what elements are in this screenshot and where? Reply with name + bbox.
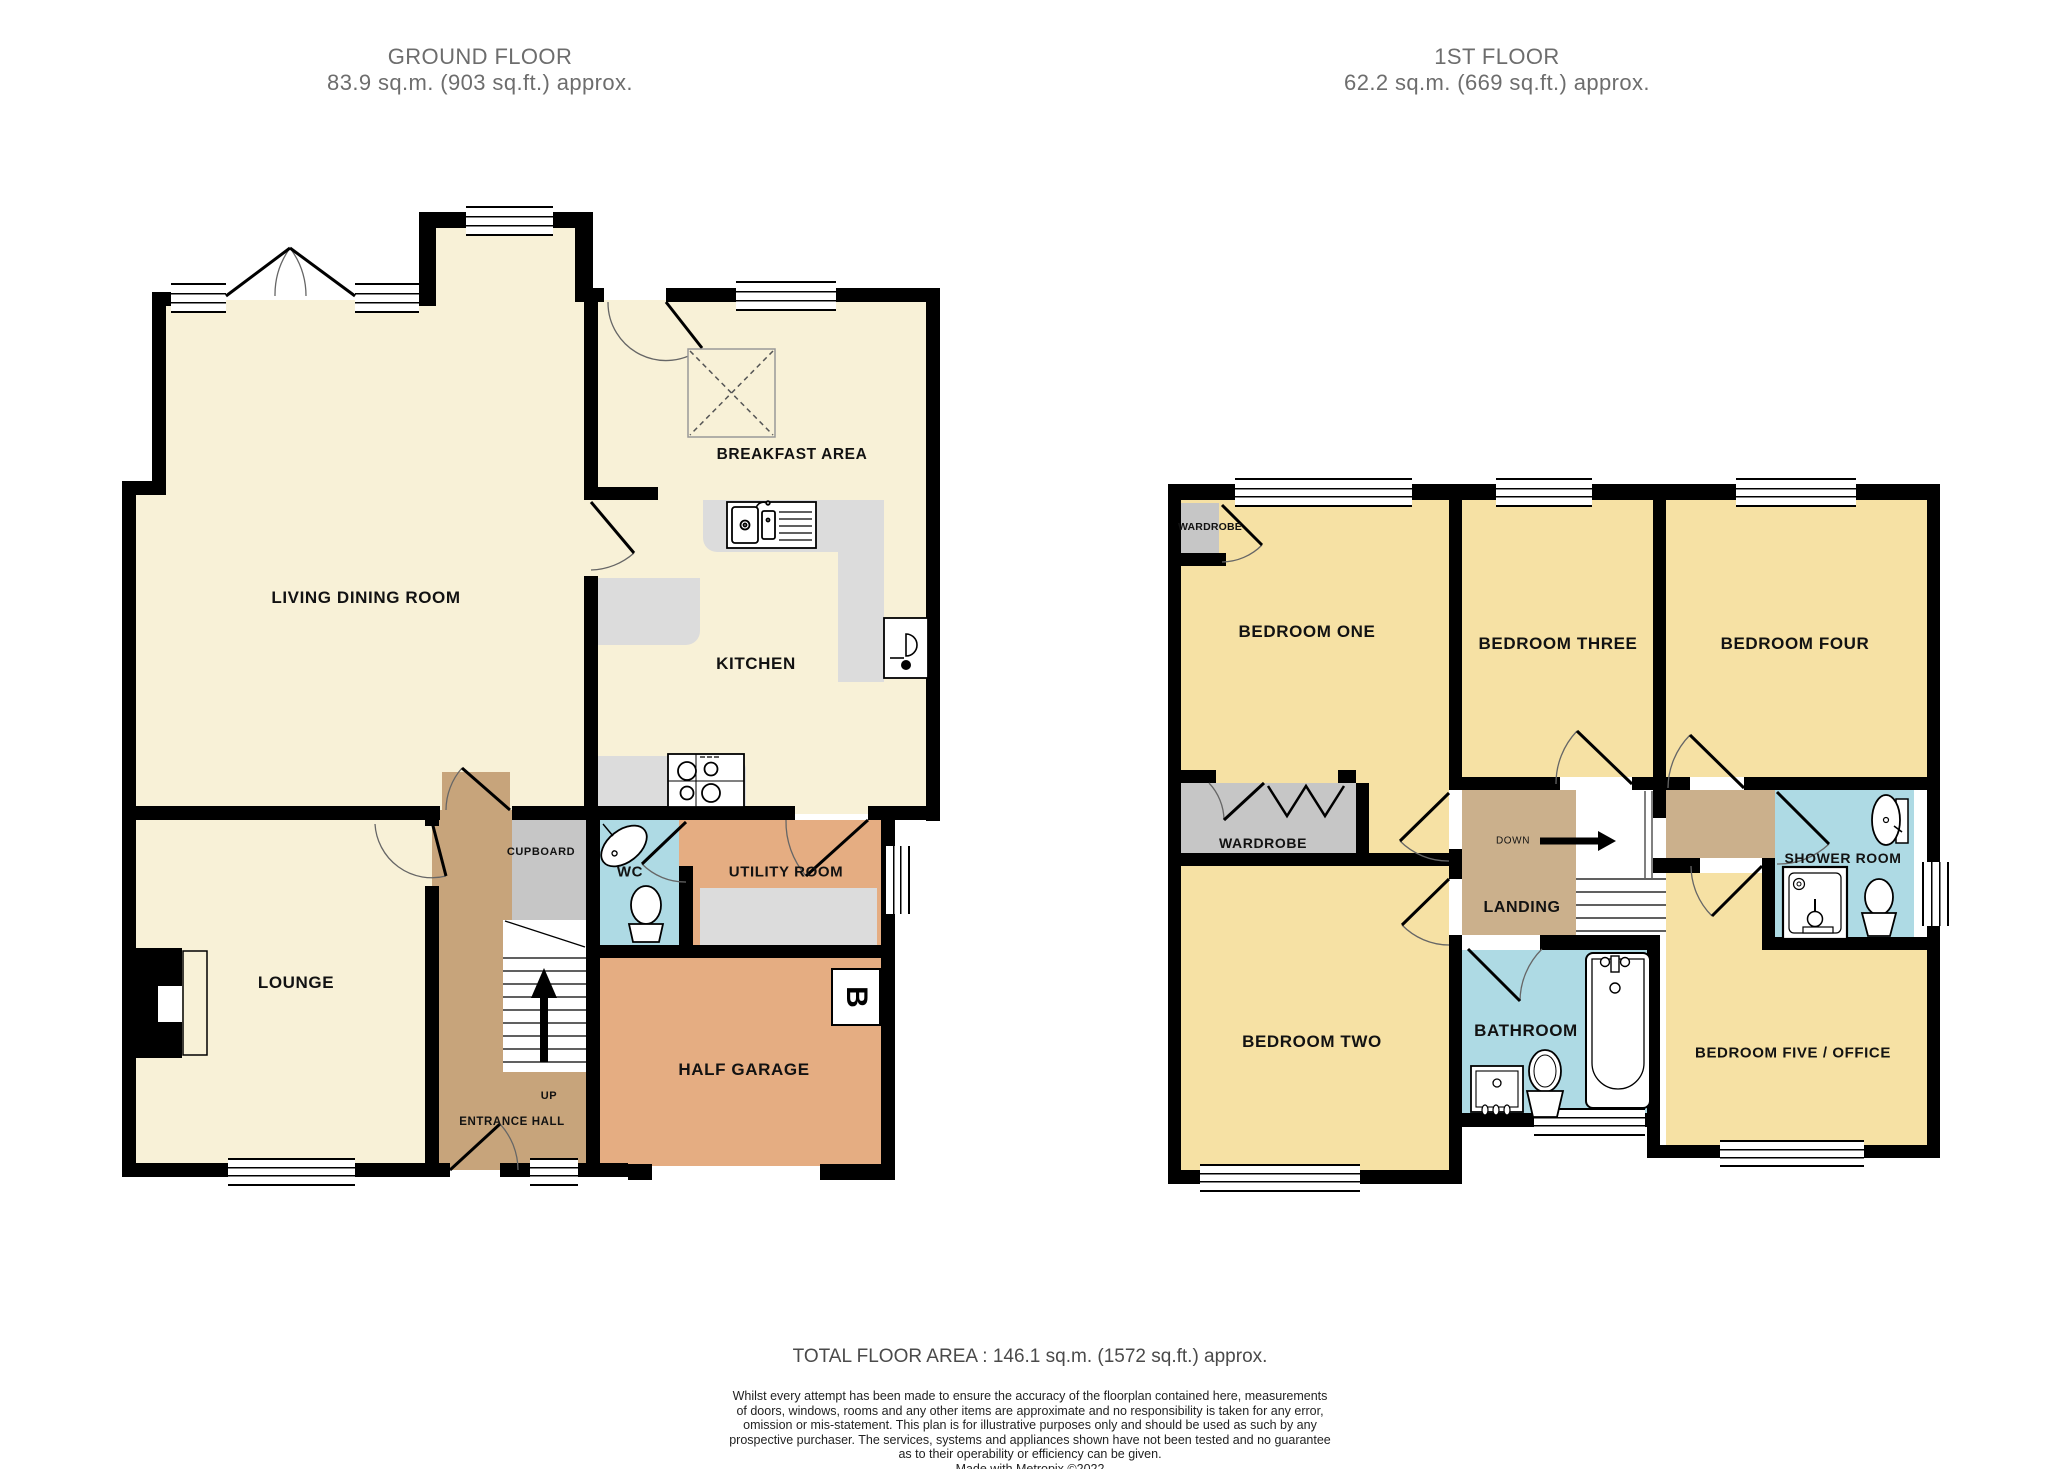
label-utility-room: UTILITY ROOM — [729, 864, 843, 881]
first-floor-subtitle: 62.2 sq.m. (669 sq.ft.) approx. — [1344, 70, 1650, 96]
label-shower-room: SHOWER ROOM — [1784, 850, 1901, 866]
label-living-dining-room: LIVING DINING ROOM — [271, 588, 460, 608]
first-floor-title: 1ST FLOOR — [1434, 44, 1559, 70]
floorplan-canvas: GROUND FLOOR 83.9 sq.m. (903 sq.ft.) app… — [0, 0, 2048, 1469]
label-wc: WC — [617, 864, 643, 881]
label-up: UP — [541, 1090, 557, 1102]
label-kitchen: KITCHEN — [716, 654, 796, 674]
label-bedroom-three: BEDROOM THREE — [1479, 634, 1638, 654]
wardrobe-bifold-doors-icon — [1268, 786, 1344, 816]
fireplace-hearth — [183, 951, 207, 1055]
label-wardrobe: WARDROBE — [1219, 835, 1307, 851]
fridge-icon — [884, 618, 928, 678]
wc-toilet-icon — [629, 886, 663, 942]
hob-icon — [668, 754, 744, 807]
boiler-box: B — [831, 968, 881, 1026]
bathroom-sink-icon — [1471, 1066, 1523, 1115]
label-bathroom: BATHROOM — [1474, 1021, 1578, 1041]
label-bedroom-two: BEDROOM TWO — [1242, 1032, 1382, 1052]
credit-line: Made with Metropix ©2022 — [956, 1462, 1105, 1469]
kitchen-sink-icon — [727, 501, 816, 548]
down-arrow-icon — [1540, 831, 1616, 851]
up-arrow-icon — [531, 968, 557, 1062]
bath-icon — [1586, 953, 1650, 1108]
label-entrance-hall: ENTRANCE HALL — [459, 1116, 565, 1128]
disclaimer-line: Whilst every attempt has been made to en… — [733, 1389, 1328, 1404]
disclaimer-line: prospective purchaser. The services, sys… — [729, 1433, 1331, 1447]
label-landing: LANDING — [1483, 899, 1560, 917]
label-wardrobe-small: WARDROBE — [1178, 521, 1242, 533]
shower-toilet-icon — [1862, 879, 1896, 936]
label-cupboard: CUPBOARD — [507, 846, 575, 858]
label-bedroom-one: BEDROOM ONE — [1239, 622, 1376, 642]
label-half-garage: HALF GARAGE — [678, 1060, 809, 1080]
label-bedroom-five-office: BEDROOM FIVE / OFFICE — [1695, 1045, 1891, 1062]
total-floor-area: TOTAL FLOOR AREA : 146.1 sq.m. (1572 sq.… — [793, 1346, 1268, 1368]
disclaimer-line: of doors, windows, rooms and any other i… — [736, 1404, 1323, 1418]
label-down: DOWN — [1496, 836, 1530, 847]
plan-symbols — [0, 0, 2048, 1469]
label-lounge: LOUNGE — [258, 973, 334, 993]
skylight-icon — [688, 349, 775, 437]
stairs-down-treads — [1576, 791, 1666, 931]
ground-floor-title: GROUND FLOOR — [388, 44, 572, 70]
bathroom-toilet-icon — [1527, 1050, 1563, 1117]
disclaimer-line: omission or mis-statement. This plan is … — [743, 1418, 1317, 1432]
boiler-label: B — [839, 986, 873, 1008]
shower-icon — [1783, 867, 1847, 939]
label-bedroom-four: BEDROOM FOUR — [1721, 634, 1870, 654]
shower-basin-icon — [1872, 795, 1908, 845]
label-breakfast-area: BREAKFAST AREA — [717, 446, 868, 464]
disclaimer-line: as to their operability or efficiency ca… — [898, 1447, 1161, 1461]
ground-floor-subtitle: 83.9 sq.m. (903 sq.ft.) approx. — [327, 70, 633, 96]
